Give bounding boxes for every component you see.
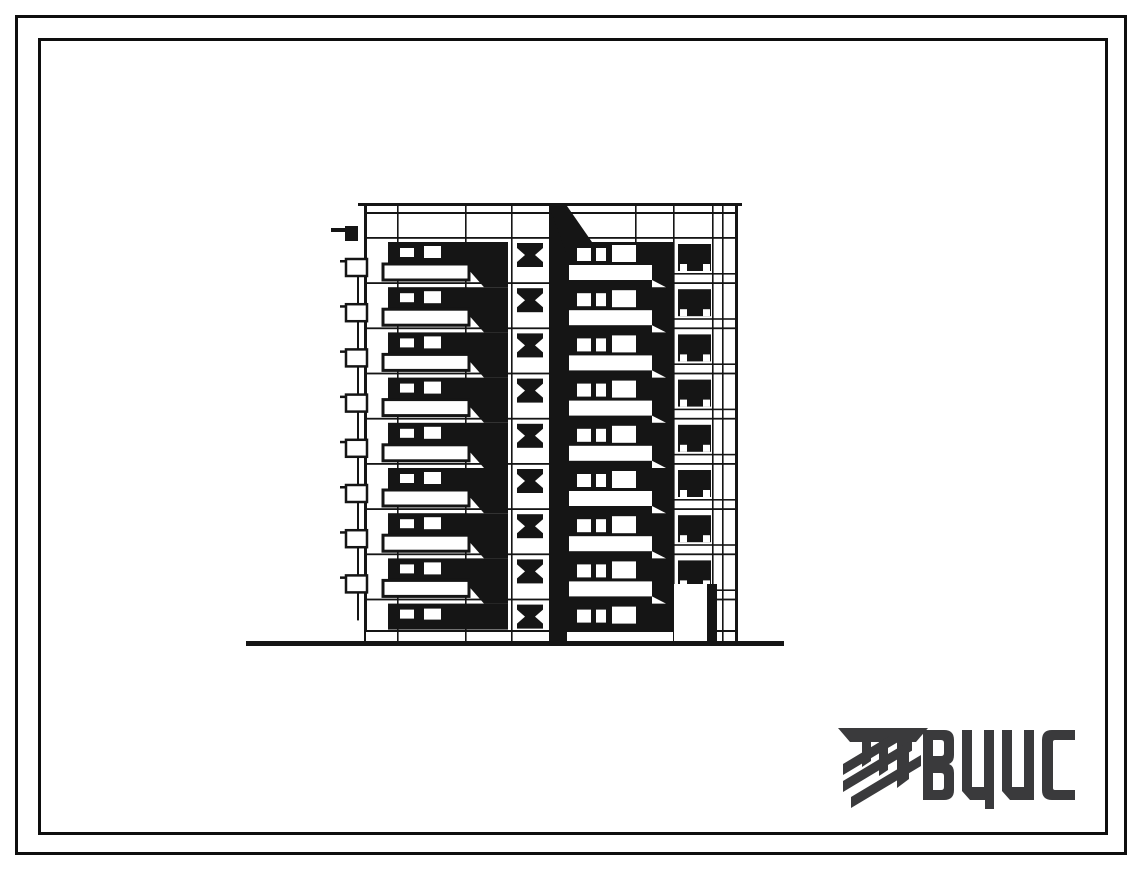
logo-text-vcis	[923, 730, 1075, 809]
left-balcony-section	[383, 242, 508, 630]
entrance	[674, 584, 717, 644]
logo-mark	[838, 728, 928, 808]
ground-line	[246, 641, 784, 646]
vcis-logo	[823, 713, 1087, 817]
catalog-page: ВЦИС	[0, 0, 1139, 869]
balcony-end-profiles	[331, 226, 367, 620]
right-loggia-section	[567, 242, 673, 632]
stair-column	[517, 243, 543, 629]
